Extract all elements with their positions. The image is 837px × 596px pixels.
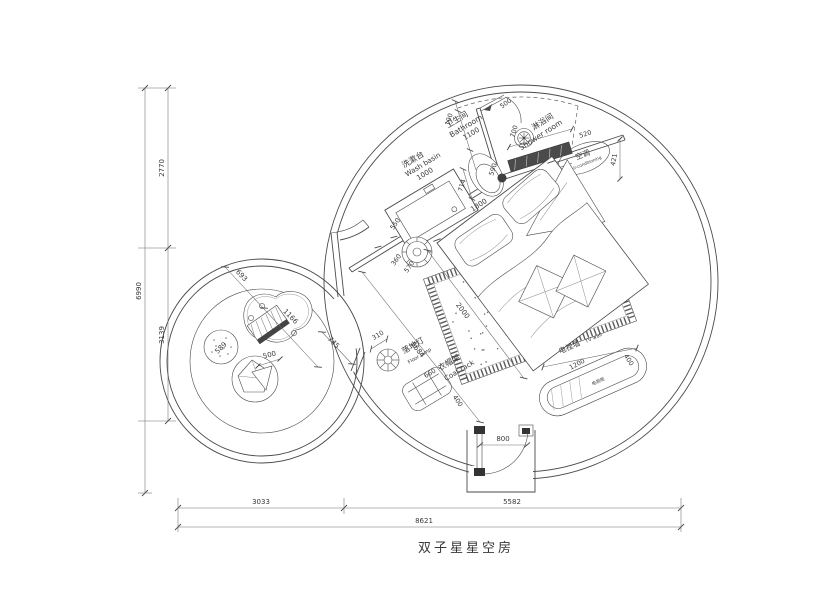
dim-bench: 520 xyxy=(578,128,592,139)
dim-w-right: 5582 xyxy=(503,498,521,506)
dim-bath-door: 500 xyxy=(498,97,513,111)
door-latch xyxy=(522,428,530,434)
dim-ac-clearance: 421 xyxy=(609,153,619,167)
door-end-block xyxy=(474,468,485,476)
left-dimension-chain: 6990 2770 3139 xyxy=(135,85,176,496)
dim-overall-w: 8621 xyxy=(415,517,433,525)
dim-chair: 500 xyxy=(262,350,277,361)
dim-coat-d: 400 xyxy=(451,393,465,408)
dim-bed-l: 2000 xyxy=(454,301,471,320)
dim-entry-door: 800 xyxy=(496,435,509,443)
bathroom-door xyxy=(480,95,521,123)
entry-horn-wall xyxy=(340,227,369,240)
floor-plan-page: 空调 air-conditioning xyxy=(0,0,837,592)
dim-small-a: 693 xyxy=(234,268,249,283)
large-ring-opening xyxy=(325,232,358,373)
floor-lamp xyxy=(377,349,399,371)
tv-wall-label-en: TV wall xyxy=(583,332,603,345)
bottom-dimension-chain: 3033 5582 8621 xyxy=(175,498,684,532)
dim-overall-h: 6990 xyxy=(135,282,143,300)
dim-h-top: 2770 xyxy=(158,159,166,177)
floor-plan-drawing: 空调 air-conditioning xyxy=(0,0,837,592)
door-hinge-block xyxy=(474,426,485,434)
dim-lamp: 310 xyxy=(371,329,386,342)
column xyxy=(498,174,507,183)
pouf: 589 xyxy=(204,330,238,364)
drawing-title: 双子星星空房 xyxy=(418,540,514,556)
round-chair: 500 xyxy=(232,350,283,402)
dim-stool-d: 360 xyxy=(390,252,404,267)
entrance: 800 xyxy=(467,425,535,492)
dim-w-left: 3033 xyxy=(252,498,270,506)
dim-h-bottom: 3139 xyxy=(158,326,166,344)
bed xyxy=(437,150,656,370)
kidney-table xyxy=(244,291,312,343)
